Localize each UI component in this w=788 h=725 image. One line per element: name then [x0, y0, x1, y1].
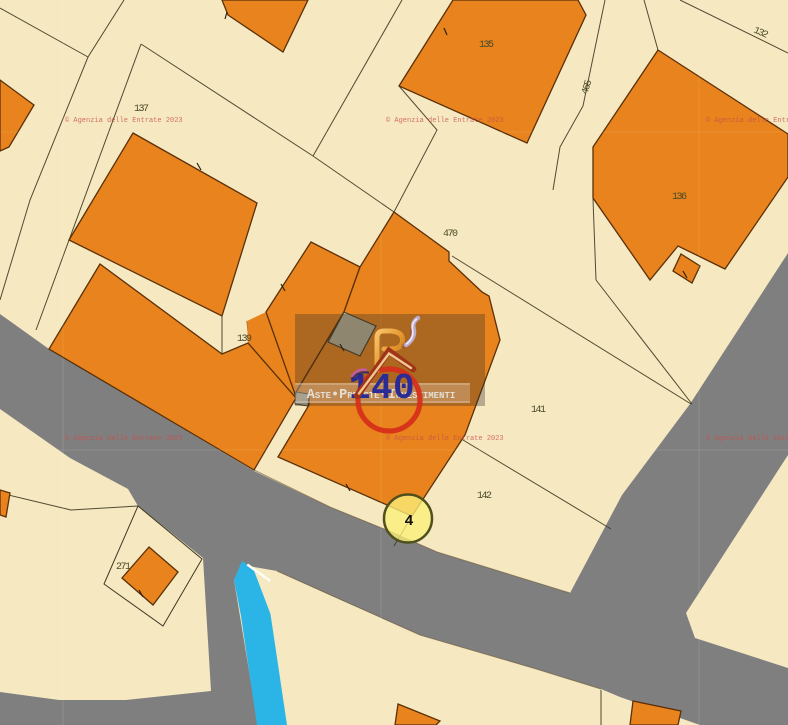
svg-text:135: 135: [479, 40, 494, 51]
svg-text:142: 142: [477, 491, 492, 502]
svg-text:© Agenzia delle Entrate 2023: © Agenzia delle Entrate 2023: [706, 434, 788, 443]
svg-text:4: 4: [404, 513, 413, 530]
svg-text:© Agenzia delle Entrate 2023: © Agenzia delle Entrate 2023: [386, 116, 504, 125]
svg-text:271: 271: [116, 562, 131, 573]
svg-text:136: 136: [672, 192, 687, 203]
svg-text:470: 470: [443, 229, 458, 240]
svg-text:© Agenzia delle Entrate 2023: © Agenzia delle Entrate 2023: [65, 434, 183, 443]
svg-text:© Agenzia delle Entrate 2023: © Agenzia delle Entrate 2023: [386, 434, 504, 443]
svg-text:139: 139: [237, 334, 252, 345]
svg-text:© Agenzia delle Entrate 2023: © Agenzia delle Entrate 2023: [706, 116, 788, 125]
svg-text:137: 137: [134, 104, 149, 115]
svg-text:141: 141: [531, 405, 546, 416]
svg-text:© Agenzia delle Entrate 2023: © Agenzia delle Entrate 2023: [65, 116, 183, 125]
